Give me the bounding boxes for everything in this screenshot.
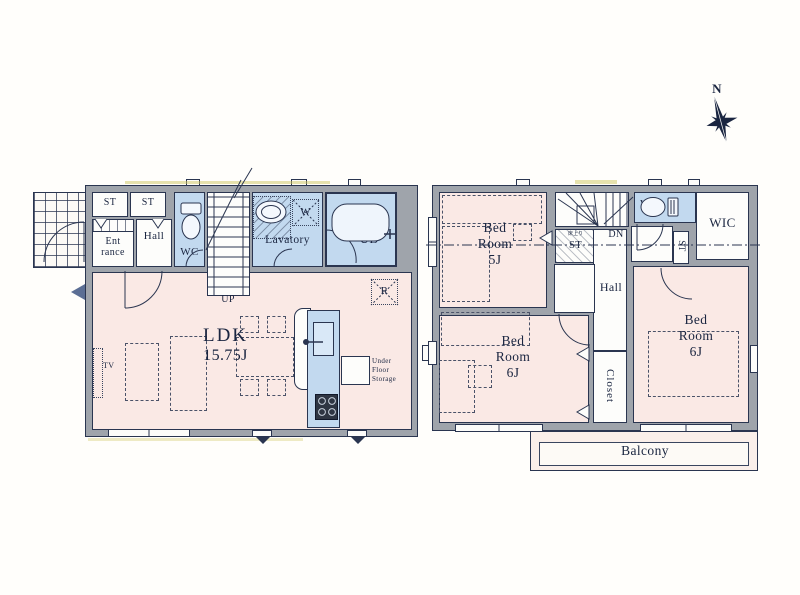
scan-artifact [125, 181, 330, 184]
dining-chair [240, 379, 259, 396]
window [750, 345, 758, 373]
window [688, 179, 700, 186]
stairs-2f [555, 192, 629, 227]
label-tv: TV [103, 362, 121, 371]
under-floor-storage-box [341, 356, 370, 385]
label-st-side: ST [676, 231, 686, 261]
tv-stand [93, 348, 103, 398]
label-ub: UB [352, 232, 386, 246]
kitchen-stove [315, 394, 338, 420]
sofa [125, 343, 159, 401]
label-balcony: Balcony [531, 444, 759, 459]
room-hall-1f [136, 219, 172, 267]
hall-2f-wc-front [631, 226, 673, 262]
window [348, 179, 361, 186]
label-compass-north: N [706, 82, 728, 96]
stairs-1f [207, 192, 250, 296]
west-wall-marker [71, 284, 85, 300]
kitchen-sink [313, 322, 334, 356]
shutter-box [422, 345, 429, 361]
hall-2f-west [554, 264, 595, 313]
vent [252, 430, 272, 437]
label-hall-1f: Hall [136, 230, 172, 242]
label-st-left: ST [92, 197, 128, 208]
label-wc-2f: WC [636, 199, 662, 211]
window [108, 429, 190, 437]
label-washer: W [292, 206, 319, 218]
compass-rose [700, 92, 743, 147]
window [516, 179, 530, 186]
room-unit-bath [325, 192, 397, 267]
entrance-porch-tiles [33, 192, 89, 268]
vent [347, 430, 367, 437]
label-closet: Closet [604, 351, 616, 421]
floor-plan-page: ST ST Entrance Hall WC Lavatory W UB UP … [0, 0, 800, 595]
label-dn: DN [602, 229, 630, 240]
label-up: UP [212, 294, 244, 305]
scan-artifact [575, 180, 617, 184]
window [428, 217, 437, 267]
label-wc-1f: WC [174, 246, 205, 258]
window [455, 424, 543, 432]
label-entrance: Entrance [92, 236, 134, 258]
window [640, 424, 732, 432]
label-bedroom-6j-left: BedRoom6J [482, 333, 544, 382]
label-refrigerator: R [371, 285, 398, 297]
label-under-floor-storage: UnderFloorStorage [372, 357, 406, 384]
window [428, 341, 437, 365]
label-lavatory: Lavatory [250, 234, 325, 247]
label-hall-2f: Hall [595, 281, 627, 294]
entrance-step-tiles [93, 220, 133, 232]
label-wic: WIC [698, 216, 747, 230]
scan-artifact [88, 438, 303, 441]
label-bedroom-5j: BedRoom5J [457, 220, 533, 269]
label-st-over-stairs: ST [556, 240, 595, 252]
lavatory-floor-hatch [253, 196, 291, 239]
balcony: Balcony [530, 431, 758, 471]
window [648, 179, 662, 186]
label-st-note: 床上り [556, 232, 595, 238]
label-bedroom-6j-right: BedRoom6J [664, 312, 728, 361]
dining-chair [267, 379, 286, 396]
label-ldk: LDK 15.75J [178, 326, 273, 364]
label-st-right: ST [130, 197, 166, 208]
